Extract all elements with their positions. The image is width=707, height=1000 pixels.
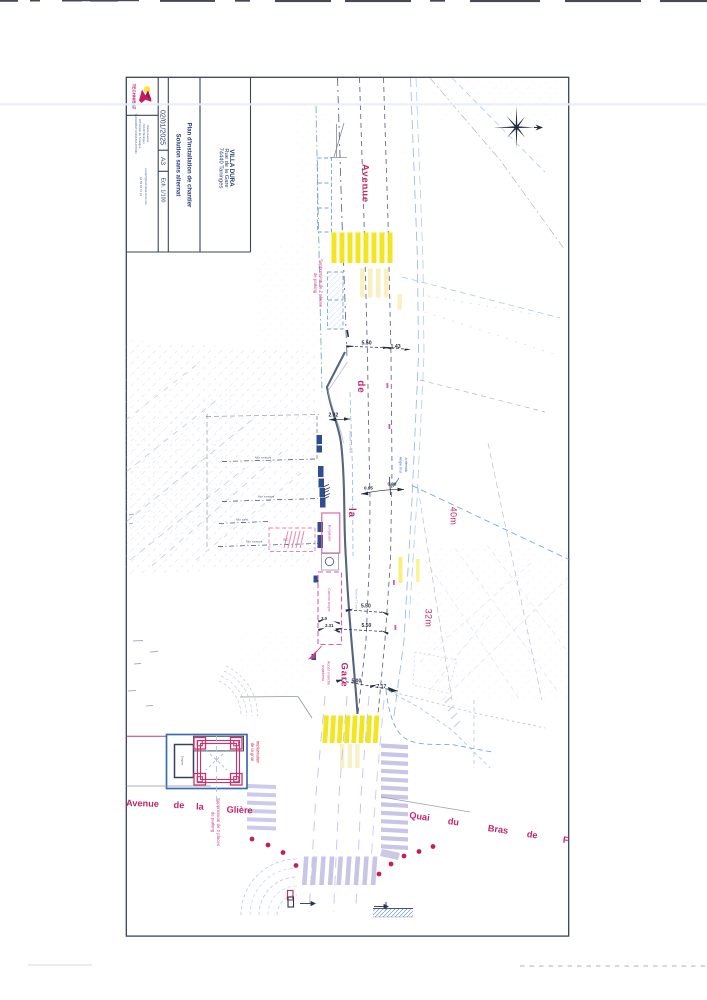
svg-text:Haute-Savoie: Haute-Savoie [146,125,150,143]
svg-text:0.90: 0.90 [388,482,397,487]
svg-text:0.95: 0.95 [364,486,373,491]
svg-text:Solution sans alternat: Solution sans alternat [174,134,180,197]
svg-text:Camion toupie: Camion toupie [327,588,331,611]
svg-text:32m: 32m [424,609,434,628]
svg-text:de parking: de parking [211,812,216,833]
svg-text:74440 Taninges: 74440 Taninges [217,148,223,189]
svg-text:Plan d'installation de chantie: Plan d'installation de chantier [185,123,191,208]
svg-text:02/01/2025: 02/01/2025 [158,110,165,145]
svg-text:Angle mur: Angle mur [399,457,403,474]
svg-text:Suppression de 2 places: Suppression de 2 places [319,259,324,308]
svg-text:7.17: 7.17 [377,684,387,690]
svg-text:la: la [346,508,357,518]
svg-text:la: la [196,802,205,812]
svg-text:WC: WC [283,538,289,542]
svg-text:Bras: Bras [487,823,509,836]
svg-text:40m: 40m [449,507,459,526]
svg-text:5.50: 5.50 [361,604,371,610]
svg-text:A3: A3 [159,157,166,165]
svg-text:105 Route de Taninges: 105 Route de Taninges [138,119,142,149]
svg-text:Avenue: Avenue [126,798,159,809]
svg-text:de parking: de parking [313,273,318,294]
svg-text:TECHNIBAT CONSTRUCTION: TECHNIBAT CONSTRUCTION [134,113,138,153]
svg-text:de: de [355,380,366,393]
svg-text:Bordure T2 exist.: Bordure T2 exist. [355,589,359,612]
svg-text:Gare: Gare [340,663,351,688]
svg-text:de la grue: de la grue [250,743,255,762]
svg-text:du: du [447,816,460,827]
svg-text:2.02: 2.02 [329,413,339,419]
svg-text:1.43: 1.43 [391,344,401,350]
svg-text:contact@technibat-smb.com: contact@technibat-smb.com [144,168,148,205]
svg-text:Quai: Quai [409,810,431,823]
svg-text:Ech. 1/100: Ech. 1/100 [159,178,165,203]
svg-text:Suppression de 2 places: Suppression de 2 places [216,798,221,847]
svg-text:Avenue: Avenue [361,164,372,203]
svg-text:Implantation: Implantation [255,741,260,764]
svg-text:de: de [526,829,538,840]
svg-text:Glière: Glière [226,805,252,816]
svg-text:Accès marché: Accès marché [327,661,331,685]
svg-text:Mur existant: Mur existant [255,456,272,460]
svg-text:Bungalows: Bungalows [328,525,332,541]
svg-text:maintenu: maintenu [321,665,325,681]
svg-text:5.50: 5.50 [362,341,372,347]
svg-text:3.31: 3.31 [325,623,334,628]
svg-text:04 50 18 72 22: 04 50 18 72 22 [139,177,143,197]
svg-text:Engins: Engins [181,756,185,766]
svg-text:Mur existant: Mur existant [258,495,275,499]
svg-text:Mur exist.: Mur exist. [236,518,249,522]
svg-text:5.50: 5.50 [362,623,372,629]
svg-text:Mur existant: Mur existant [246,540,263,544]
svg-text:à démolir: à démolir [404,458,408,474]
svg-text:de: de [173,800,184,810]
svg-text:74440 Taninges: 74440 Taninges [142,123,146,144]
